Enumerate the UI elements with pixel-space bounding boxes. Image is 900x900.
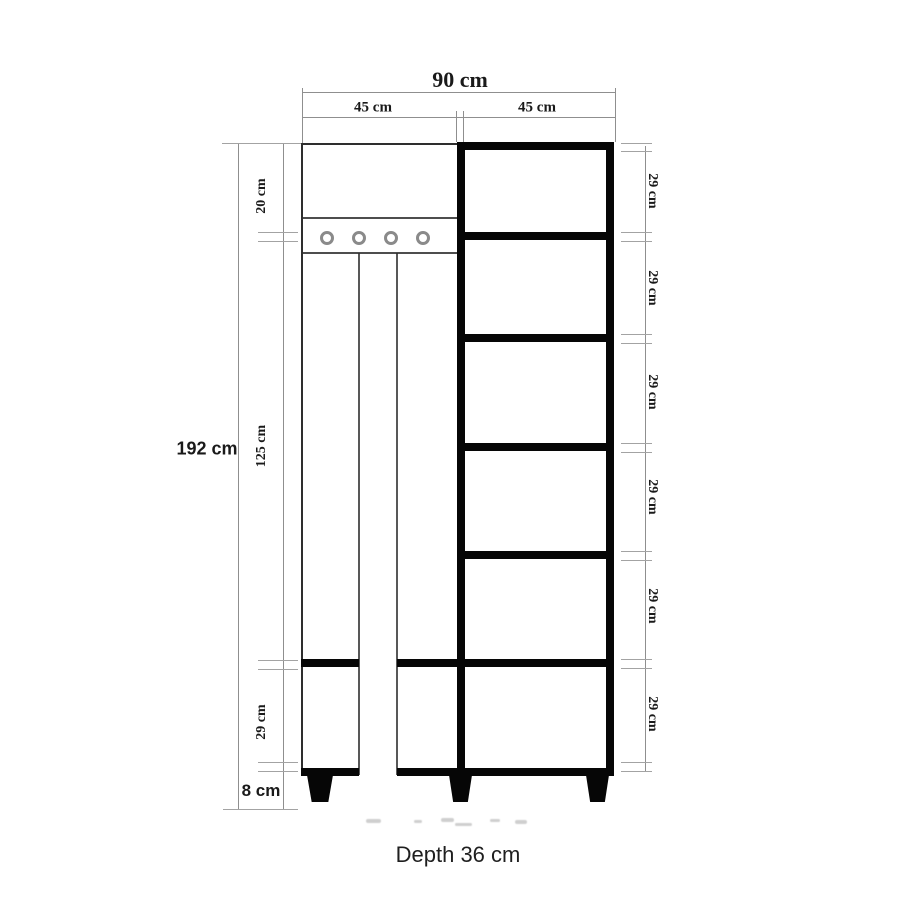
dim-tick xyxy=(463,111,464,142)
left-width-label: 45 cm xyxy=(354,100,392,117)
shelf-height-label: 29 cm xyxy=(644,173,660,208)
dim-tick xyxy=(258,241,298,242)
dim-tick xyxy=(456,111,457,142)
middle-section-label: 125 cm xyxy=(254,425,270,467)
coat-hook-icon xyxy=(384,231,398,245)
dim-tick xyxy=(223,809,298,810)
furniture-leg xyxy=(307,775,333,802)
dim-tick xyxy=(258,771,298,772)
left-sections-dim-line xyxy=(283,143,284,809)
dim-tick xyxy=(615,88,616,142)
shelf-height-label: 29 cm xyxy=(644,374,660,409)
left-unit-shelf-bar xyxy=(301,659,359,667)
diagram-canvas: 90 cm 45 cm 45 cm 192 cm 20 cm 125 cm 29… xyxy=(0,0,900,900)
coat-hook-icon xyxy=(320,231,334,245)
total-height-label: 192 cm xyxy=(176,439,237,460)
dim-tick xyxy=(621,452,652,453)
left-unit-top-edge xyxy=(301,143,461,145)
shelf-divider xyxy=(465,443,606,451)
shelf-divider xyxy=(465,659,606,667)
shelf-height-label: 29 cm xyxy=(644,588,660,623)
left-unit-left-edge xyxy=(301,143,303,775)
dim-tick xyxy=(621,771,652,772)
dim-tick xyxy=(621,659,652,660)
dim-tick xyxy=(621,551,652,552)
top-section-label: 20 cm xyxy=(254,178,270,213)
furniture-leg xyxy=(586,775,609,802)
watermark-remnant xyxy=(366,819,381,823)
dim-tick xyxy=(621,343,652,344)
total-width-label: 90 cm xyxy=(432,67,488,93)
half-width-dim-line xyxy=(302,117,616,118)
dim-tick xyxy=(621,443,652,444)
dim-tick xyxy=(258,232,298,233)
watermark-remnant xyxy=(515,820,527,824)
right-width-label: 45 cm xyxy=(518,100,556,117)
dim-tick xyxy=(621,668,652,669)
dim-tick xyxy=(621,334,652,335)
dim-tick xyxy=(621,232,652,233)
left-unit-bottom-bar xyxy=(397,768,461,776)
watermark-remnant xyxy=(441,818,454,822)
watermark-remnant xyxy=(455,823,472,826)
dim-tick xyxy=(258,762,298,763)
dim-tick xyxy=(621,560,652,561)
watermark-remnant xyxy=(490,819,500,822)
watermark-remnant xyxy=(414,820,422,823)
furniture-leg xyxy=(449,775,472,802)
leg-height-label: 8 cm xyxy=(242,781,281,801)
shelf-divider xyxy=(465,551,606,559)
bottom-section-label: 29 cm xyxy=(254,704,270,739)
dim-tick xyxy=(621,241,652,242)
dim-tick xyxy=(258,669,298,670)
mirror-strip-left-line xyxy=(358,253,360,775)
dim-tick xyxy=(258,660,298,661)
dim-tick xyxy=(302,88,303,143)
depth-label: Depth 36 cm xyxy=(396,842,521,868)
left-unit-bottom-bar xyxy=(301,768,359,776)
mirror-strip-right-line xyxy=(396,253,398,775)
total-height-dim-line xyxy=(238,143,239,809)
shelf-dim-line xyxy=(645,146,646,771)
dim-tick xyxy=(621,143,652,144)
dim-tick xyxy=(621,762,652,763)
dim-tick xyxy=(222,143,303,144)
shelf-height-label: 29 cm xyxy=(644,696,660,731)
shelf-height-label: 29 cm xyxy=(644,270,660,305)
hook-rail-bottom-line xyxy=(302,252,461,254)
hook-rail-top-line xyxy=(302,217,461,219)
coat-hook-icon xyxy=(416,231,430,245)
shelf-divider xyxy=(465,334,606,342)
dim-tick xyxy=(621,151,652,152)
shelf-divider xyxy=(465,232,606,240)
left-unit-shelf-bar xyxy=(397,659,461,667)
coat-hook-icon xyxy=(352,231,366,245)
shelf-height-label: 29 cm xyxy=(644,479,660,514)
